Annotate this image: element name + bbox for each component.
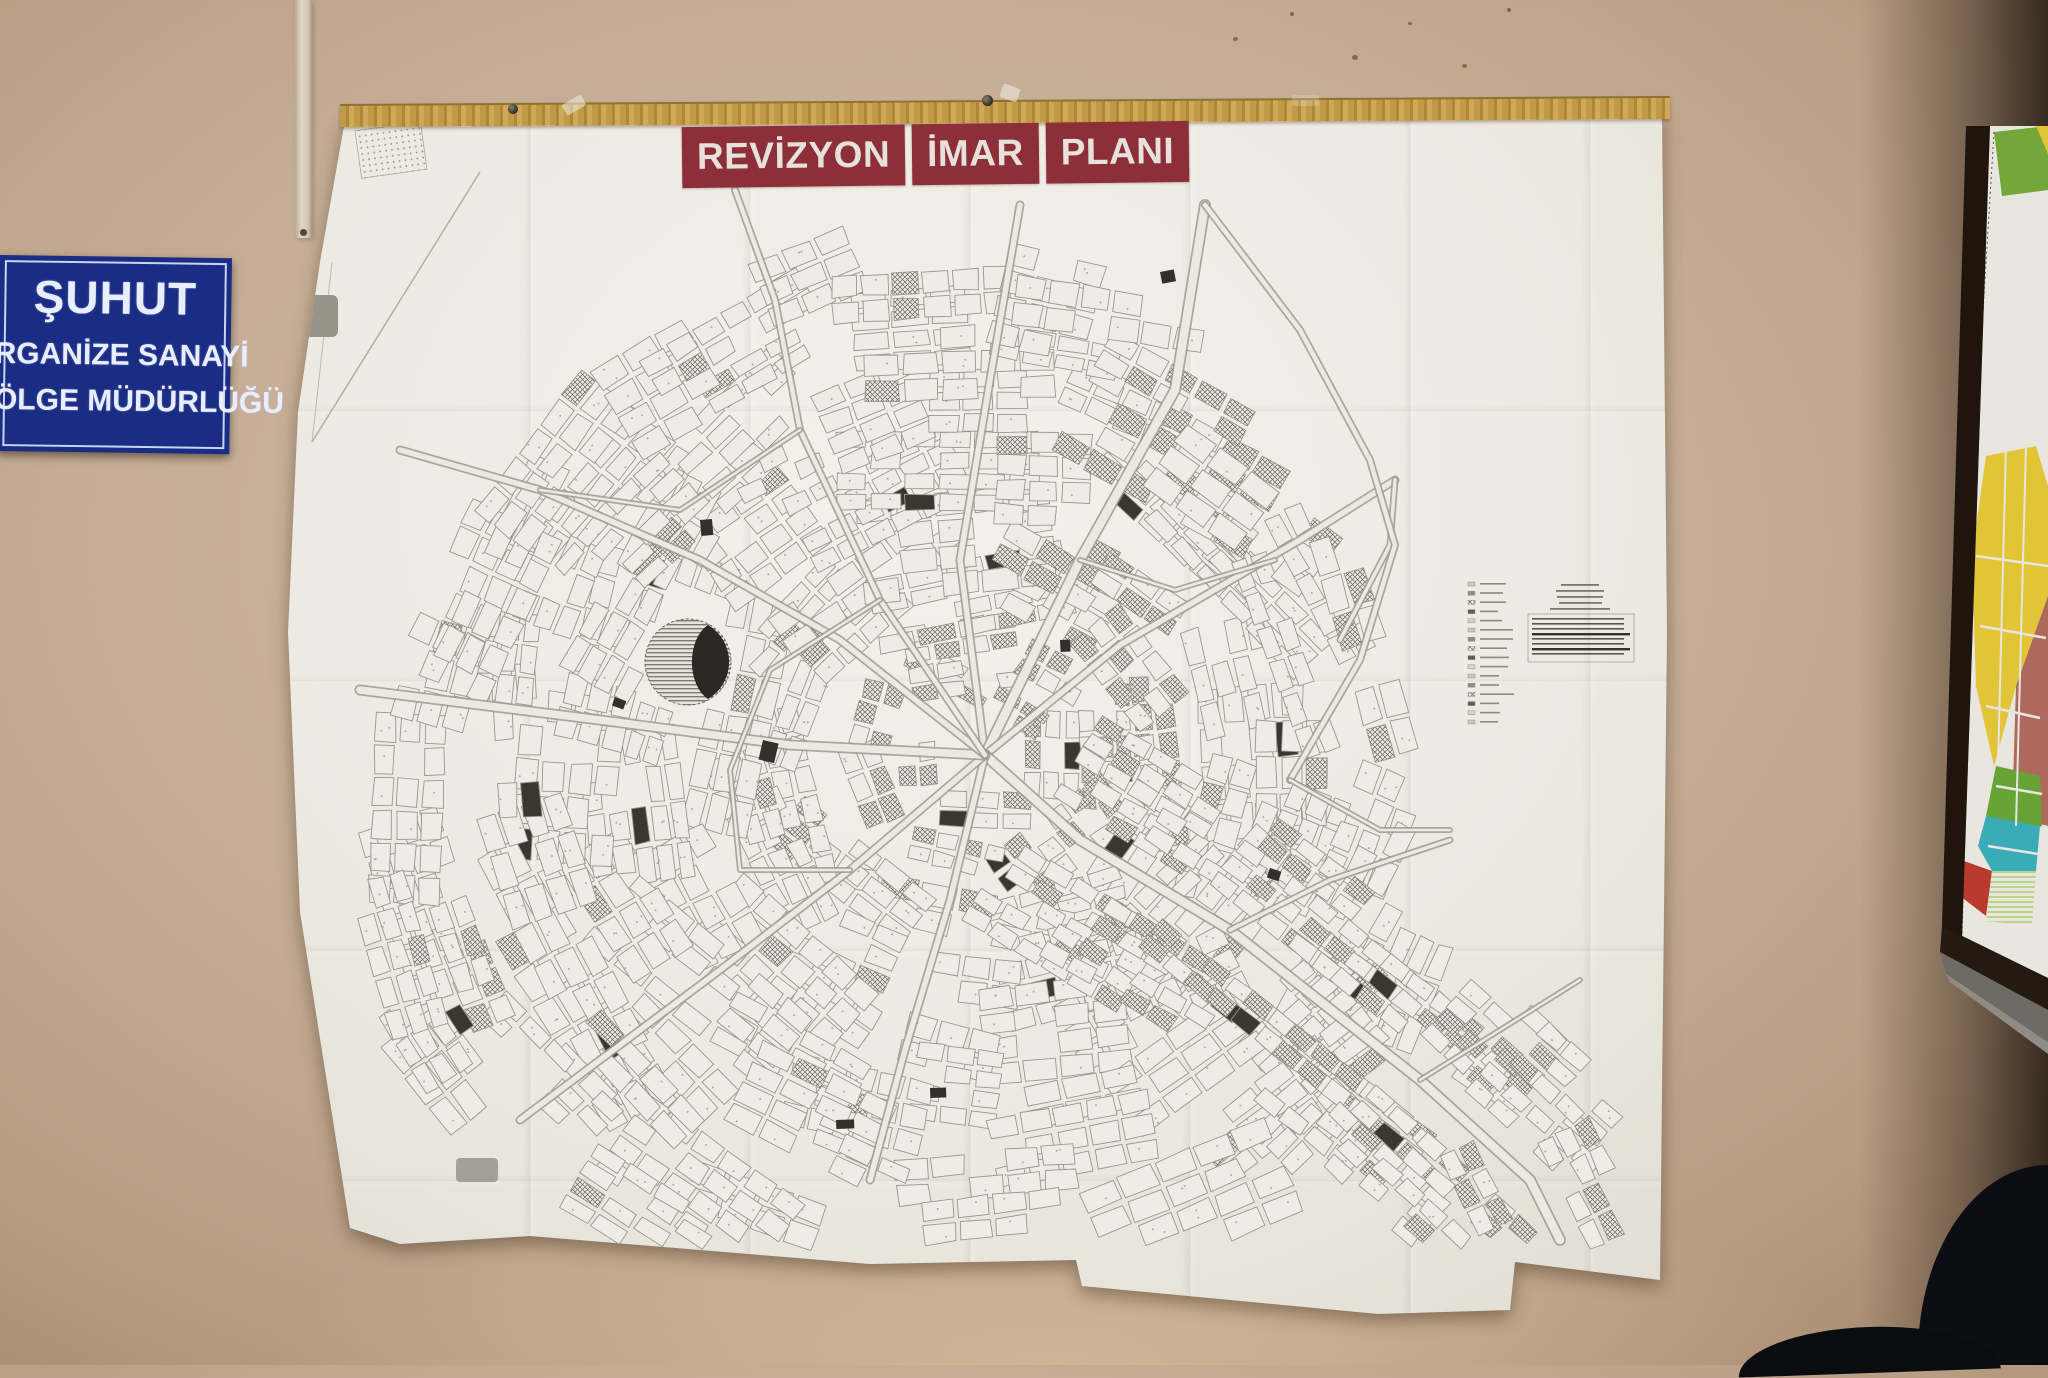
banner-word-plani: PLANI: [1045, 121, 1189, 184]
rust-speck: [1462, 64, 1467, 68]
rust-speck: [1233, 37, 1238, 41]
pushpin-screw: [982, 95, 993, 106]
sign-line-2: RGANİZE SANAYİ: [0, 337, 231, 374]
rust-speck: [1290, 12, 1294, 16]
rust-speck: [1408, 22, 1412, 25]
title-banner: REVİZYON İMAR PLANI: [682, 121, 1190, 188]
banner-word-imar: İMAR: [912, 123, 1039, 186]
name-sign: ŞUHUT RGANİZE SANAYİ ÖLGE MÜDÜRLÜĞÜ: [0, 255, 232, 454]
framed-zoning-map: [1936, 126, 2048, 1066]
tape-piece: [1292, 95, 1319, 106]
sign-line-3: ÖLGE MÜDÜRLÜĞÜ: [0, 383, 230, 420]
map-poster: [270, 112, 1670, 1352]
rust-speck: [1507, 8, 1511, 12]
pushpin-screw: [508, 104, 518, 114]
banner-word-revizyon: REVİZYON: [682, 124, 906, 188]
sign-line-1: ŞUHUT: [0, 269, 232, 326]
rust-speck: [1352, 55, 1358, 60]
